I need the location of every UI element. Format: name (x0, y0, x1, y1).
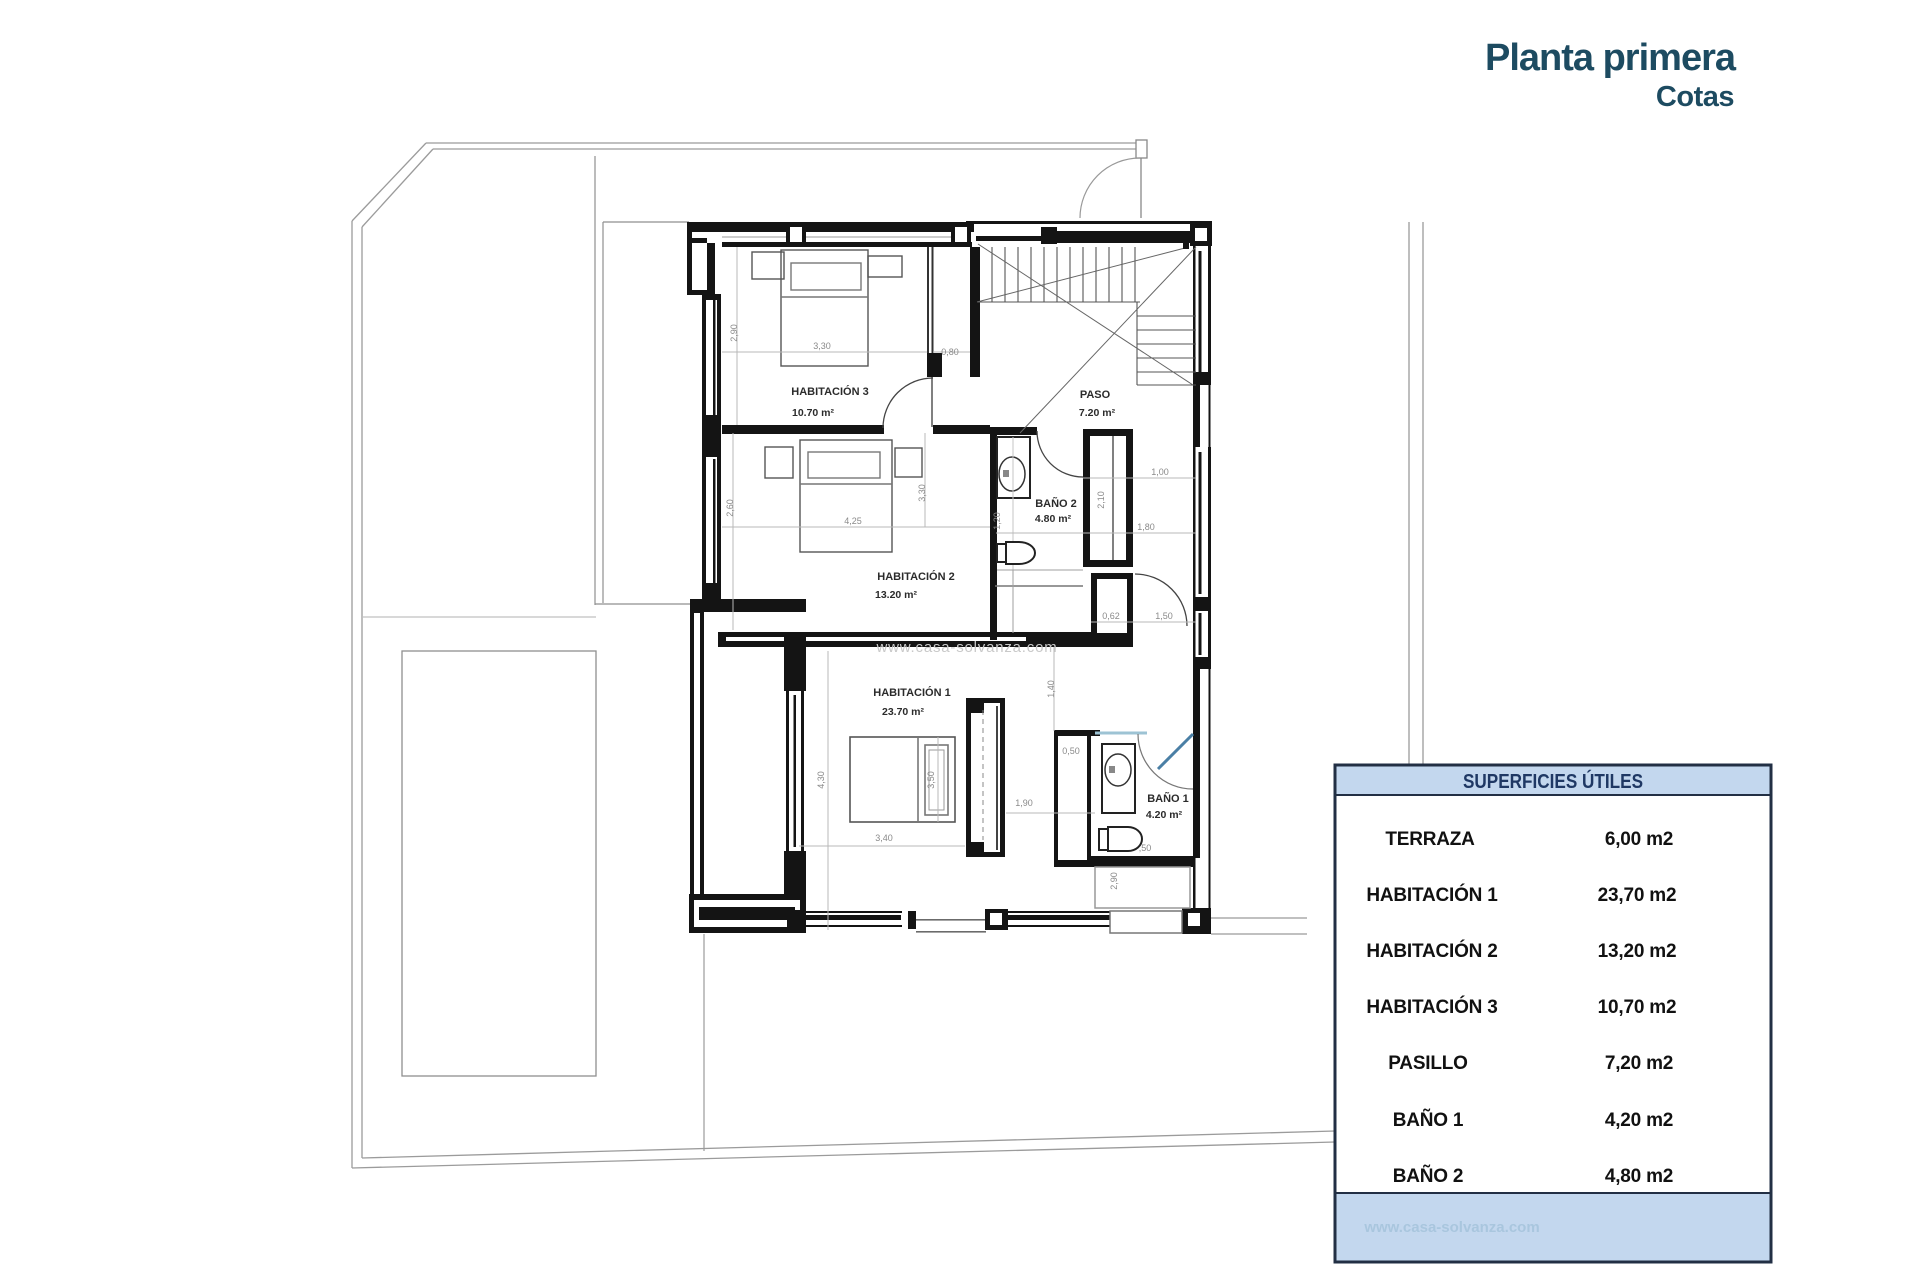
svg-text:1,50: 1,50 (1155, 611, 1173, 621)
svg-text:HABITACIÓN 1: HABITACIÓN 1 (1366, 884, 1498, 906)
svg-text:BAÑO 2: BAÑO 2 (1035, 497, 1077, 510)
svg-text:0,80: 0,80 (941, 347, 959, 357)
svg-text:2,60: 2,60 (725, 499, 735, 517)
svg-text:3,30: 3,30 (813, 341, 831, 351)
svg-text:4,25: 4,25 (844, 516, 862, 526)
svg-text:4.20 m²: 4.20 m² (1146, 809, 1183, 821)
svg-text:BAÑO 2: BAÑO 2 (1393, 1165, 1464, 1187)
svg-text:13.20 m²: 13.20 m² (875, 589, 918, 601)
svg-text:4,30: 4,30 (816, 771, 826, 789)
svg-text:TERRAZA: TERRAZA (1385, 829, 1475, 850)
svg-text:2,90: 2,90 (729, 324, 739, 342)
svg-text:13,20 m2: 13,20 m2 (1598, 941, 1677, 962)
svg-text:PASO: PASO (1080, 389, 1111, 401)
svg-text:3,30: 3,30 (917, 484, 927, 502)
svg-text:HABITACIÓN 3: HABITACIÓN 3 (791, 385, 868, 398)
svg-text:Planta primera: Planta primera (1485, 37, 1737, 79)
svg-text:4,20 m2: 4,20 m2 (1605, 1110, 1673, 1131)
svg-text:1,00: 1,00 (1151, 467, 1169, 477)
svg-text:,50: ,50 (1139, 843, 1152, 853)
svg-text:Cotas: Cotas (1656, 81, 1734, 113)
svg-text:1,90: 1,90 (1015, 798, 1033, 808)
svg-text:4,80 m2: 4,80 m2 (1605, 1166, 1673, 1187)
svg-text:HABITACIÓN 2: HABITACIÓN 2 (877, 570, 954, 583)
svg-text:7,20 m2: 7,20 m2 (1605, 1053, 1673, 1074)
svg-text:6,00 m2: 6,00 m2 (1605, 829, 1673, 850)
svg-text:0,62: 0,62 (1102, 611, 1120, 621)
svg-text:BAÑO 1: BAÑO 1 (1393, 1109, 1464, 1131)
svg-text:7.20 m²: 7.20 m² (1079, 407, 1116, 419)
svg-text:www.casa-solvanza.com: www.casa-solvanza.com (1363, 1219, 1539, 1236)
svg-text:3,40: 3,40 (875, 833, 893, 843)
svg-text:1,20: 1,20 (992, 512, 1002, 530)
svg-text:0,50: 0,50 (1062, 746, 1080, 756)
svg-text:2,90: 2,90 (1109, 872, 1119, 890)
svg-text:HABITACIÓN 2: HABITACIÓN 2 (1366, 940, 1497, 962)
svg-text:2,10: 2,10 (1096, 491, 1106, 509)
svg-text:1,40: 1,40 (1046, 680, 1056, 698)
svg-text:23,70 m2: 23,70 m2 (1598, 885, 1677, 906)
svg-text:www.casa-solvanza.com: www.casa-solvanza.com (875, 639, 1057, 656)
svg-text:1,80: 1,80 (1137, 522, 1155, 532)
svg-text:10.70 m²: 10.70 m² (792, 407, 835, 419)
svg-text:10,70 m2: 10,70 m2 (1598, 997, 1677, 1018)
svg-text:PASILLO: PASILLO (1388, 1053, 1468, 1074)
svg-text:3,50: 3,50 (926, 771, 936, 789)
svg-text:BAÑO 1: BAÑO 1 (1147, 792, 1189, 805)
svg-text:HABITACIÓN 3: HABITACIÓN 3 (1366, 996, 1497, 1018)
svg-text:4.80 m²: 4.80 m² (1035, 513, 1072, 525)
svg-text:23.70 m²: 23.70 m² (882, 706, 925, 718)
svg-text:SUPERFICIES ÚTILES: SUPERFICIES ÚTILES (1463, 769, 1643, 793)
svg-text:HABITACIÓN 1: HABITACIÓN 1 (873, 686, 950, 699)
